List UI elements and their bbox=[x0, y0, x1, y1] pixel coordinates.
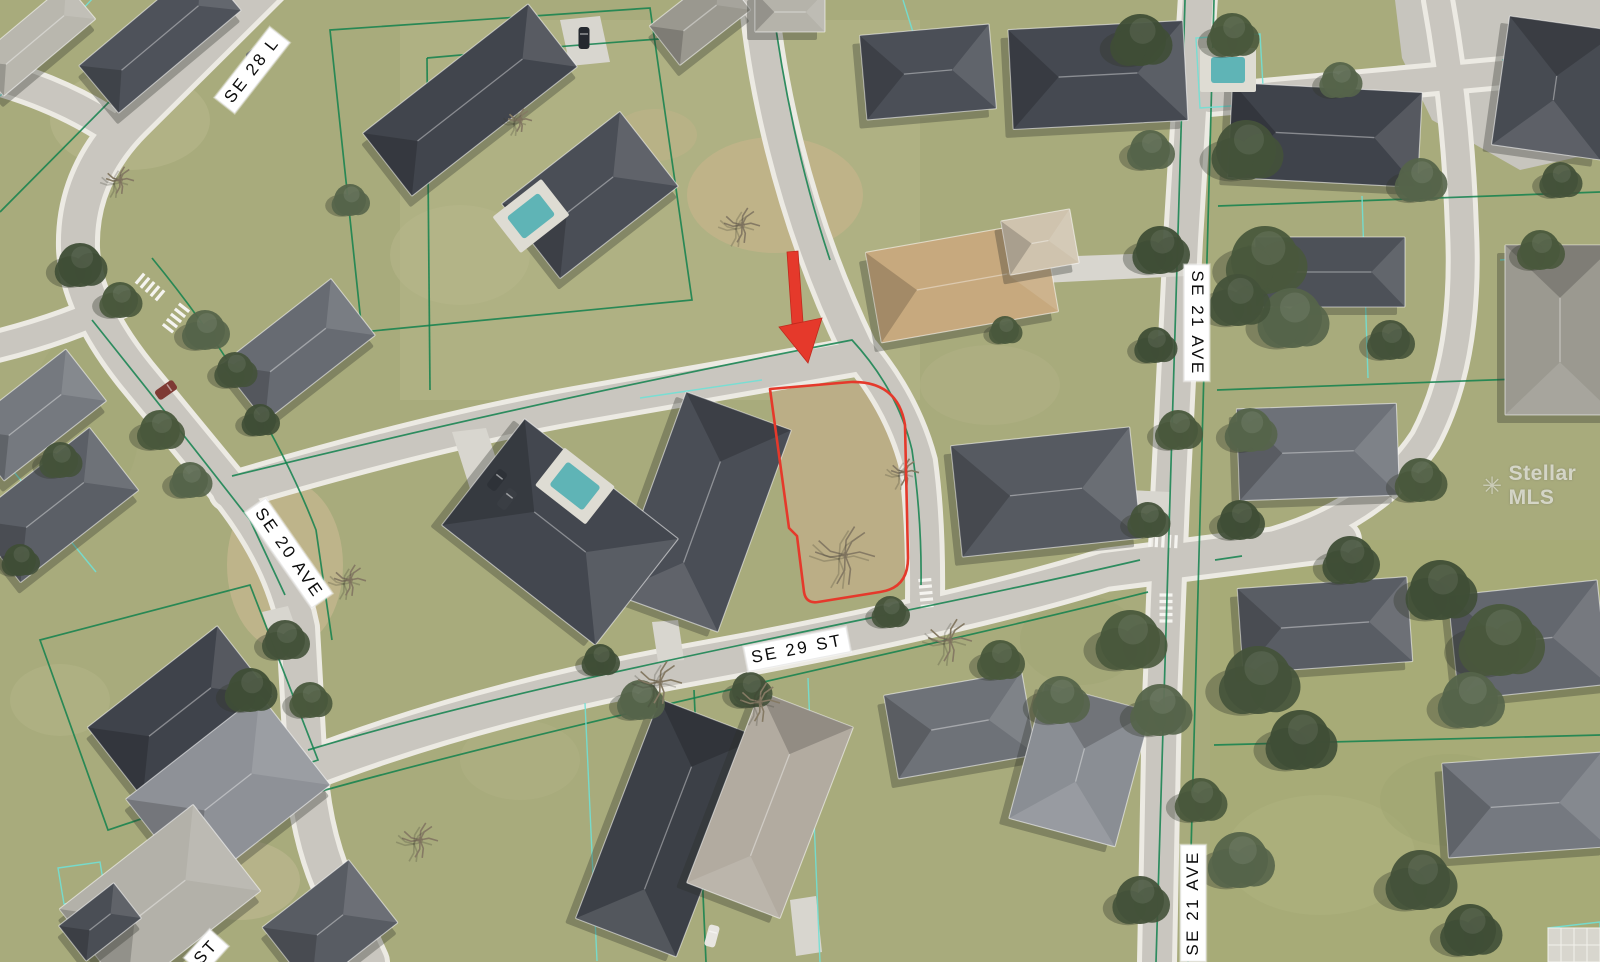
aerial-imagery bbox=[0, 0, 1600, 962]
aerial-map: SE 28 L SE 20 AVE SE 29 ST SE 21 AVE SE … bbox=[0, 0, 1600, 962]
street-label-se-21-ave-top: SE 21 AVE bbox=[1184, 264, 1210, 381]
street-label-se-21-ave-top-text: SE 21 AVE bbox=[1188, 270, 1207, 375]
street-label-se-21-ave-bottom: SE 21 AVE bbox=[1180, 844, 1206, 961]
street-label-se-21-ave-bottom-text: SE 21 AVE bbox=[1183, 850, 1202, 955]
